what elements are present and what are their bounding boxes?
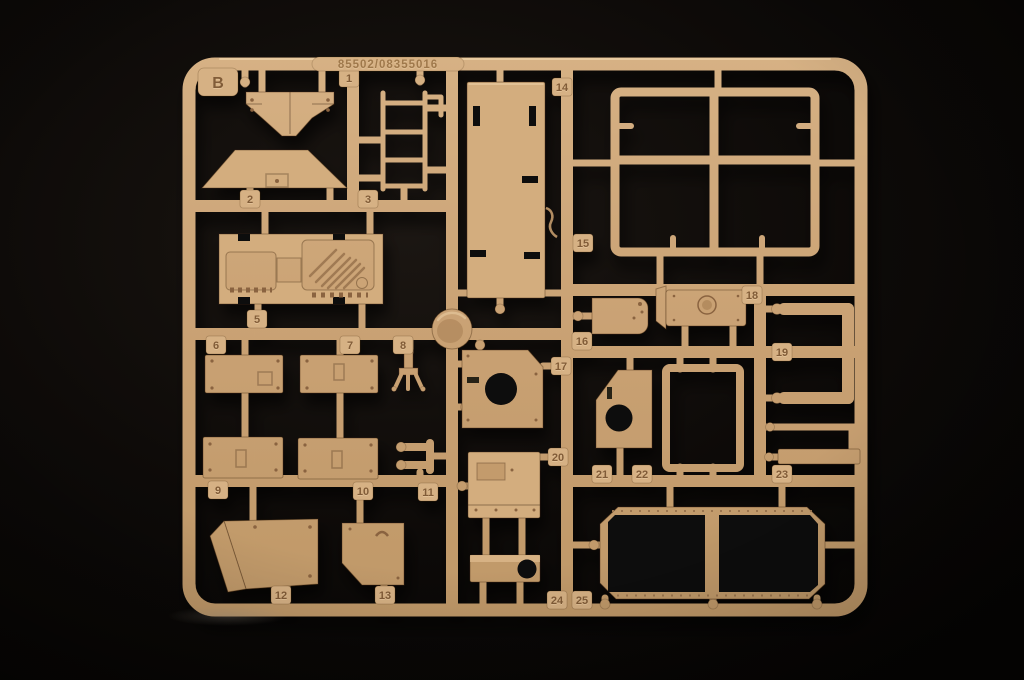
vignette-overlay (0, 0, 1024, 680)
sprue-photo: B 1 2 3 5 6 7 8 9 10 11 12 13 14 15 16 1… (0, 0, 1024, 680)
photo-canvas: B 1 2 3 5 6 7 8 9 10 11 12 13 14 15 16 1… (0, 0, 1024, 680)
